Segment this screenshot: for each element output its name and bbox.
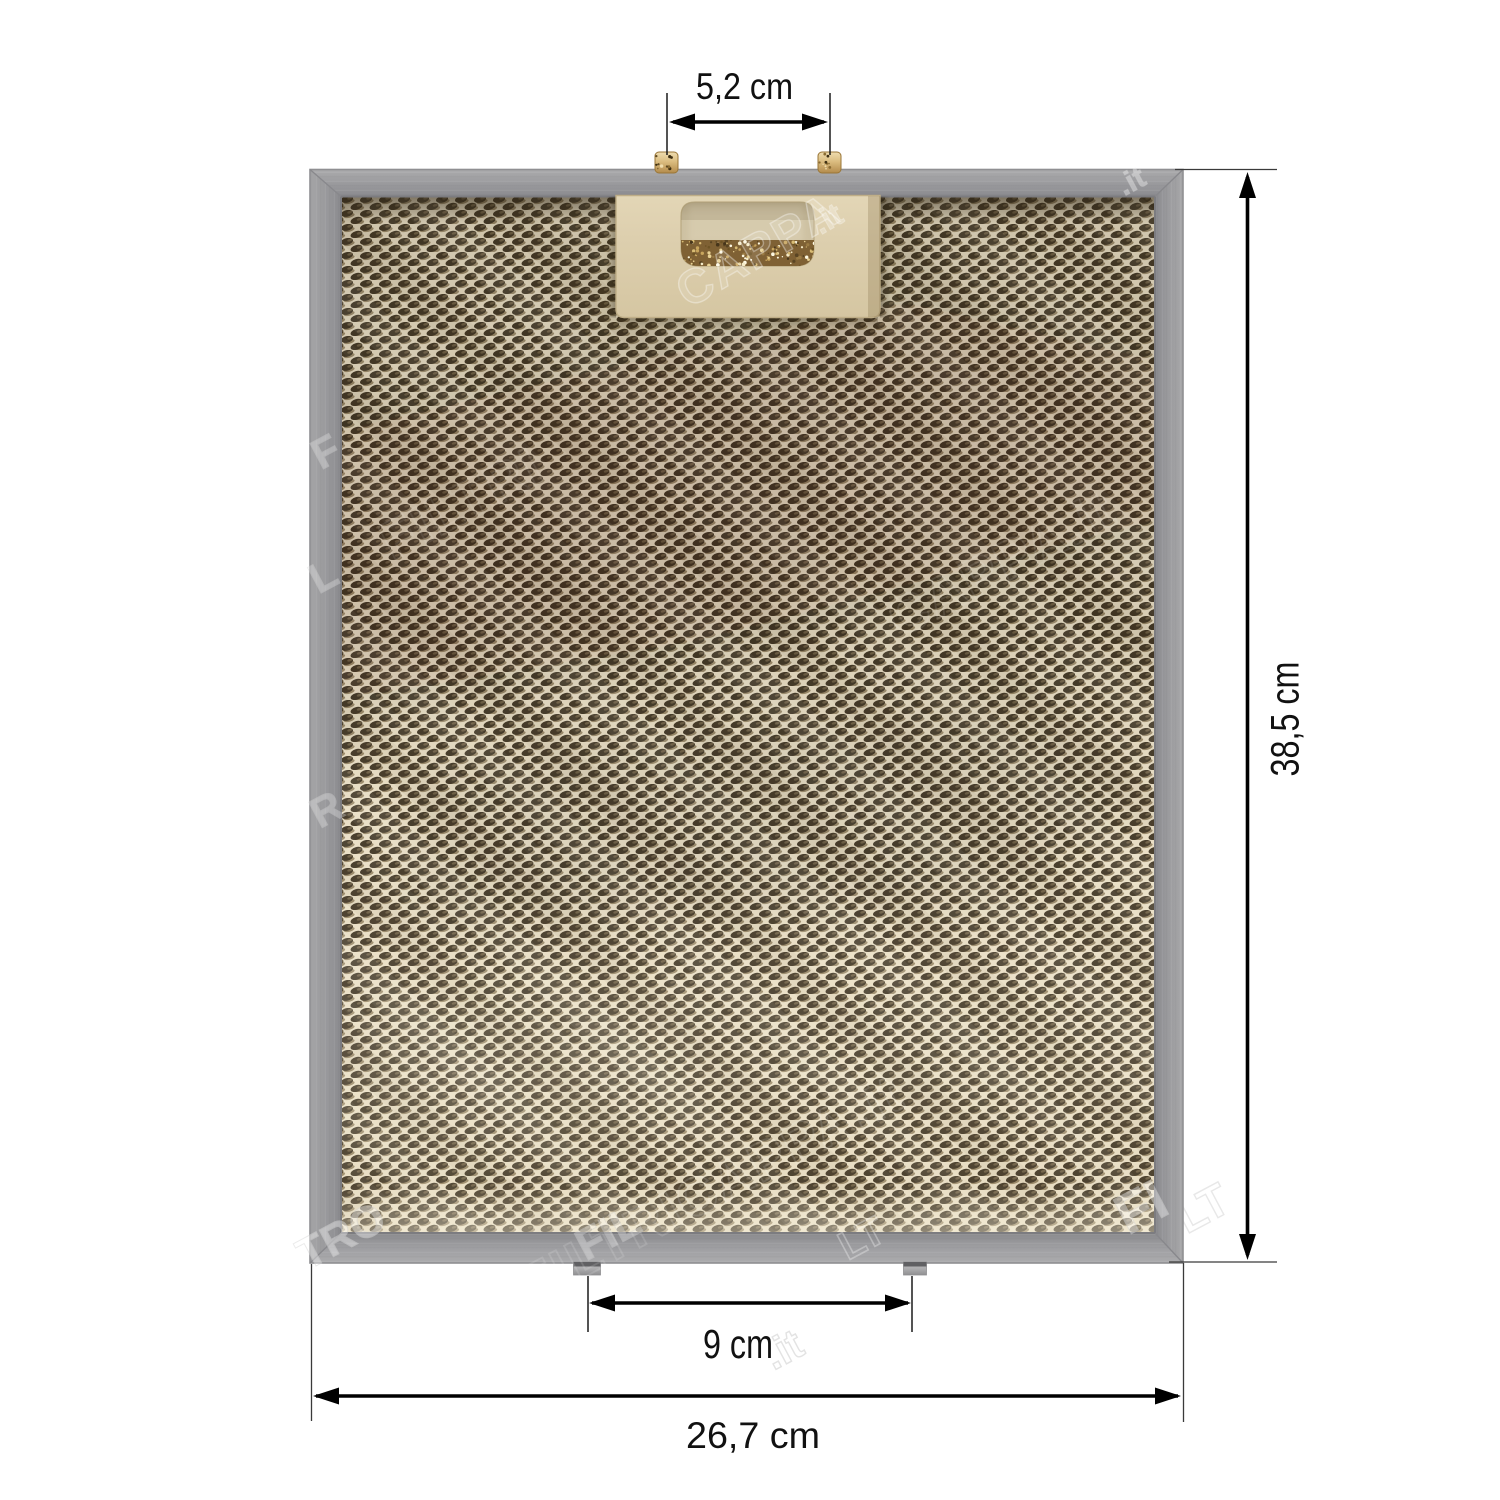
svg-text:9 cm: 9 cm — [703, 1321, 773, 1367]
svg-text:5,2 cm: 5,2 cm — [696, 66, 793, 107]
svg-text:26,7 cm: 26,7 cm — [686, 1415, 820, 1456]
svg-text:38,5 cm: 38,5 cm — [1264, 662, 1308, 777]
